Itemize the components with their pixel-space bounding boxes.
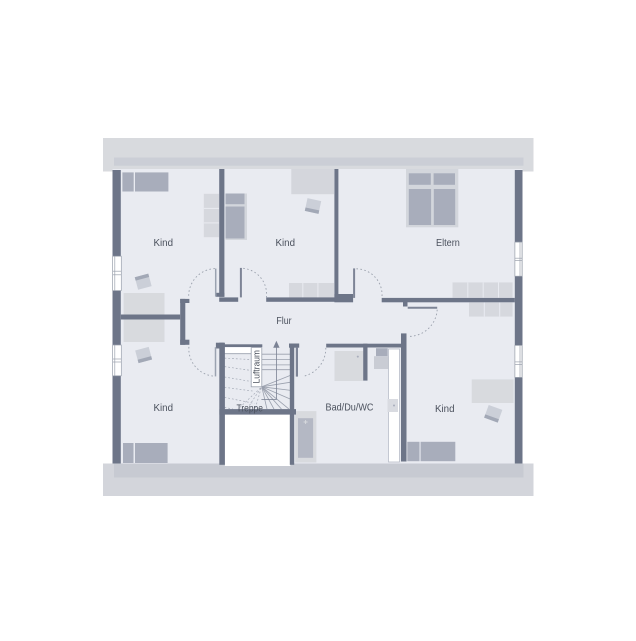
svg-text:Treppe: Treppe [237,402,264,414]
svg-text:Luftraum: Luftraum [252,350,262,384]
svg-text:Kind: Kind [154,402,174,414]
svg-text:Kind: Kind [435,403,455,415]
svg-text:Bad/Du/WC: Bad/Du/WC [326,401,374,413]
svg-text:Flur: Flur [276,315,292,327]
svg-text:Eltern: Eltern [436,237,460,249]
svg-text:Kind: Kind [276,237,296,249]
svg-text:Kind: Kind [154,237,174,249]
